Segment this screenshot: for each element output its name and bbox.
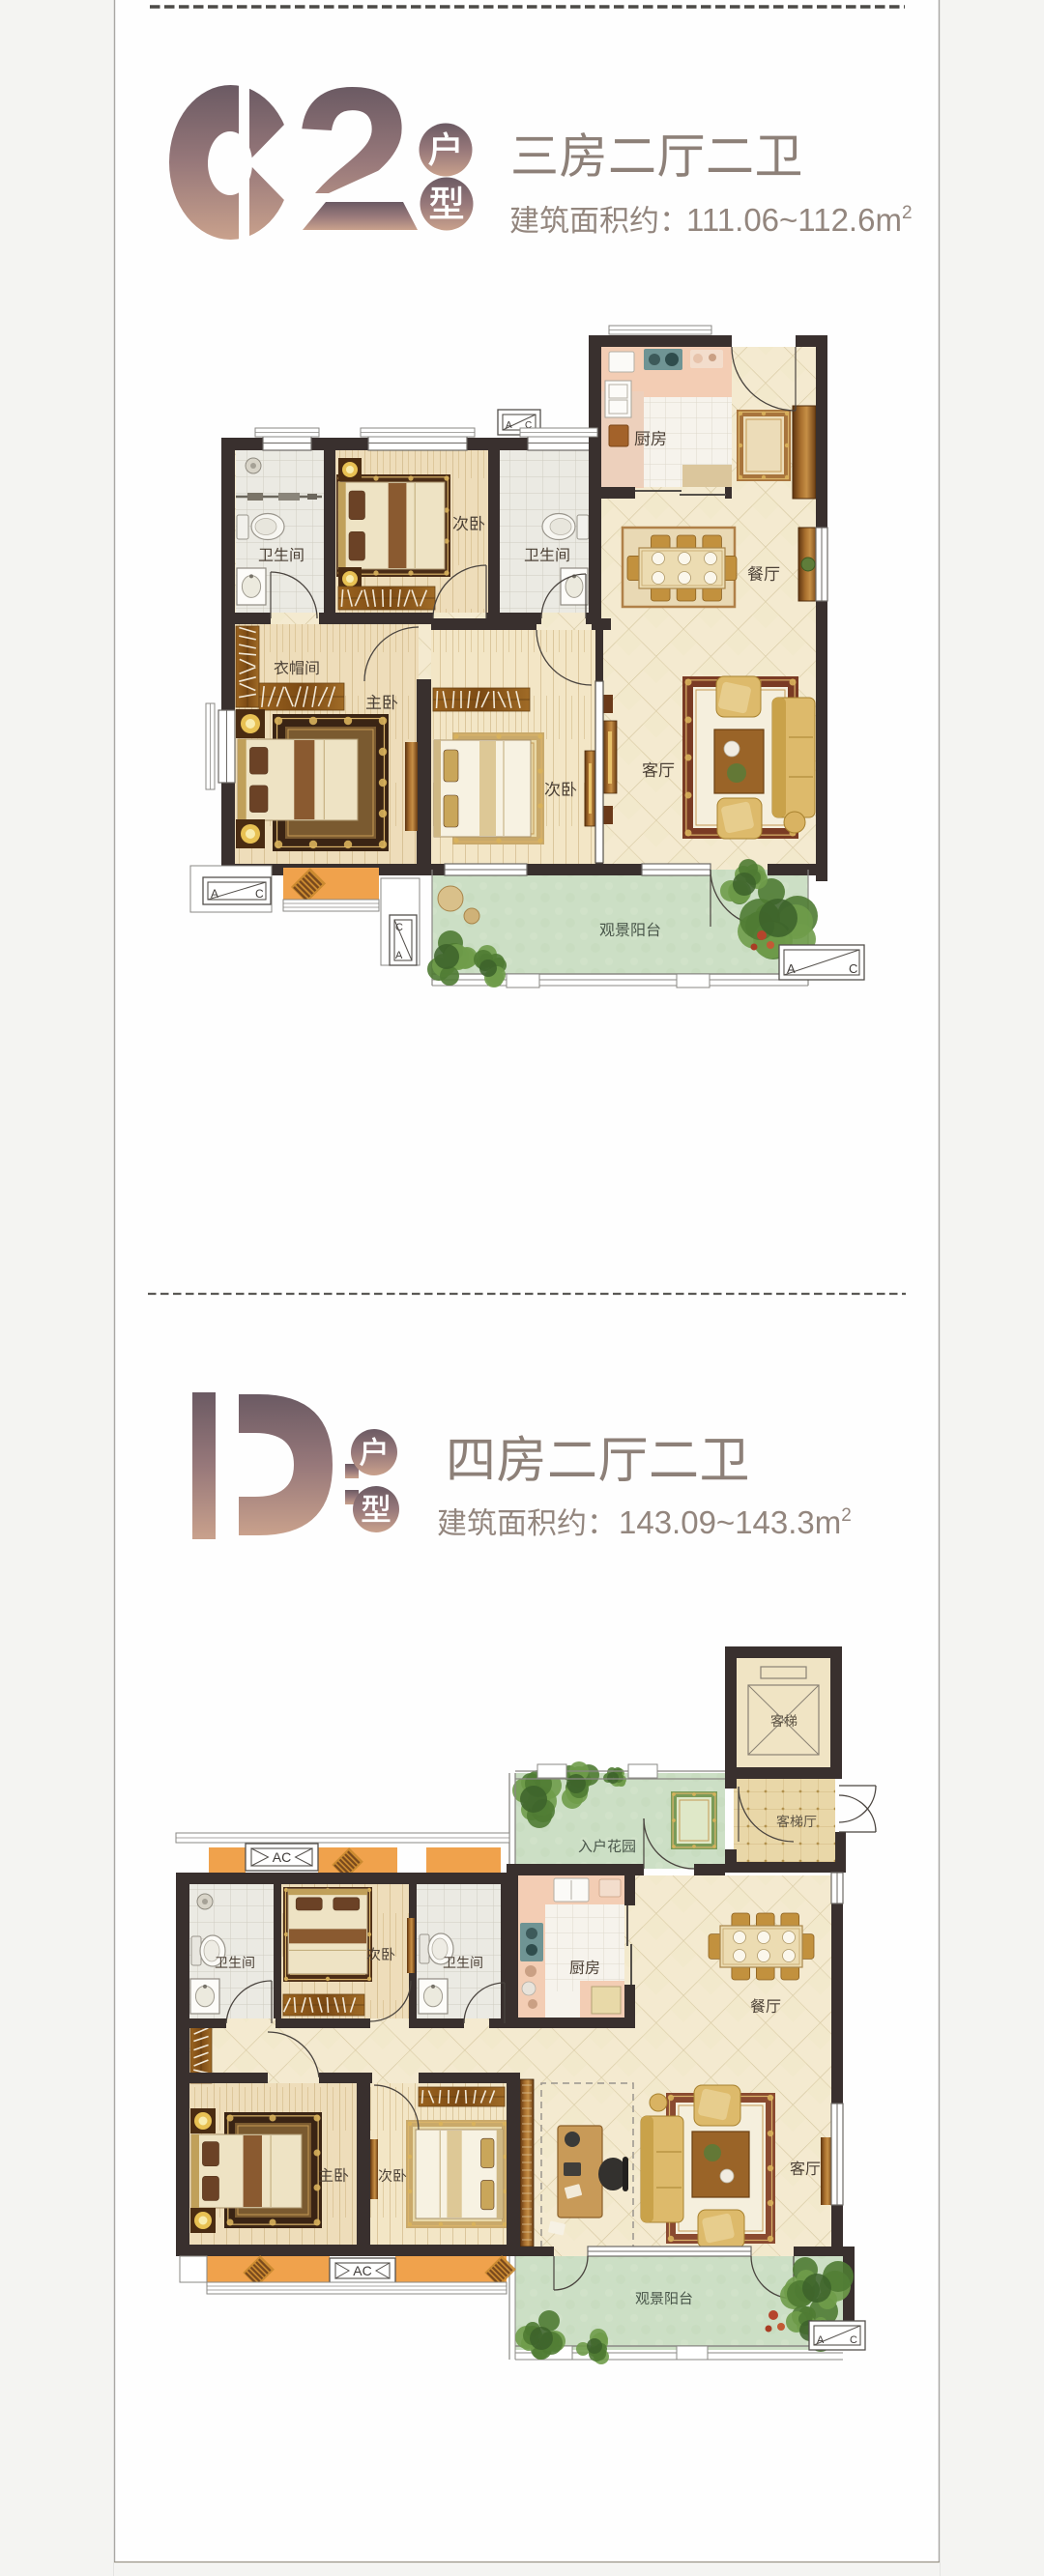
svg-text:111.06~112.6m2: 111.06~112.6m2 [686,202,913,238]
svg-text:A: A [787,961,796,976]
svg-text:C: C [395,922,403,933]
svg-text:A: A [211,887,218,901]
svg-text:AC: AC [273,1849,291,1865]
svg-text:C: C [850,2334,857,2346]
svg-text:C: C [255,887,264,901]
svg-text:A: A [506,420,512,431]
svg-text:143.09~143.3m2: 143.09~143.3m2 [619,1504,852,1540]
svg-text:A: A [817,2334,825,2346]
svg-text:A: A [395,950,403,961]
svg-text:AC: AC [353,2263,371,2278]
svg-text:C: C [849,961,857,976]
